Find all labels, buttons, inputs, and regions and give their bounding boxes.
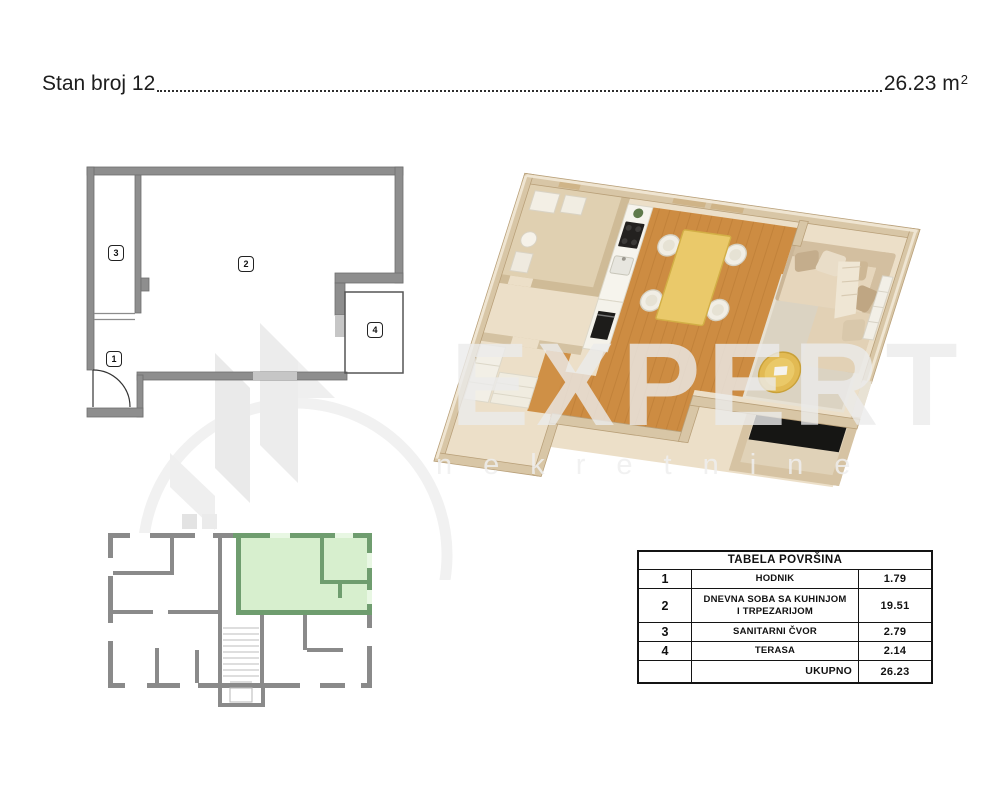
row-number: 1 <box>639 570 692 588</box>
squared-exponent: 2 <box>961 72 968 87</box>
building-key-plan <box>100 528 380 708</box>
area-table: TABELA POVRŠINA 1 HODNIK 1.79 2 DNEVNA S… <box>637 550 933 684</box>
room-area: 2.79 <box>859 623 931 641</box>
floorplan-page: { "header": { "title": "Stan broj 12", "… <box>0 0 1000 800</box>
2d-floorplan <box>80 155 410 425</box>
room-label-1: 1 <box>106 351 122 367</box>
room-label-2: 2 <box>238 256 254 272</box>
room-label-3: 3 <box>108 245 124 261</box>
page-title: Stan broj 12 26.23 m2 <box>42 72 968 96</box>
total-label: UKUPNO <box>692 661 859 682</box>
highlighted-unit <box>233 533 372 615</box>
room3-door-lines <box>94 314 135 320</box>
table-total-row: UKUPNO 26.23 <box>639 661 931 682</box>
row-number-empty <box>639 661 692 682</box>
apartment-title: Stan broj 12 <box>42 72 155 96</box>
total-area-value: 26.23 <box>859 661 931 682</box>
3d-floorplan-render <box>415 150 1000 530</box>
dotted-leader <box>157 89 882 92</box>
table-row: 1 HODNIK 1.79 <box>639 570 931 589</box>
room-name: DNEVNA SOBA SA KUHINJOM I TRPEZARIJOM <box>692 589 859 622</box>
table-row: 2 DNEVNA SOBA SA KUHINJOM I TRPEZARIJOM … <box>639 589 931 623</box>
table-title: TABELA POVRŠINA <box>639 552 931 570</box>
total-area: 26.23 m2 <box>884 72 968 96</box>
room-name: SANITARNI ČVOR <box>692 623 859 641</box>
table-row: 3 SANITARNI ČVOR 2.79 <box>639 623 931 642</box>
room-area: 19.51 <box>859 589 931 622</box>
table-row: 4 TERASA 2.14 <box>639 642 931 661</box>
plan-windows <box>253 315 345 380</box>
room-label-4: 4 <box>367 322 383 338</box>
room-area: 2.14 <box>859 642 931 660</box>
room-name: TERASA <box>692 642 859 660</box>
entry-door-arc <box>93 370 130 407</box>
room-area: 1.79 <box>859 570 931 588</box>
row-number: 2 <box>639 589 692 622</box>
row-number: 4 <box>639 642 692 660</box>
room-name: HODNIK <box>692 570 859 588</box>
row-number: 3 <box>639 623 692 641</box>
